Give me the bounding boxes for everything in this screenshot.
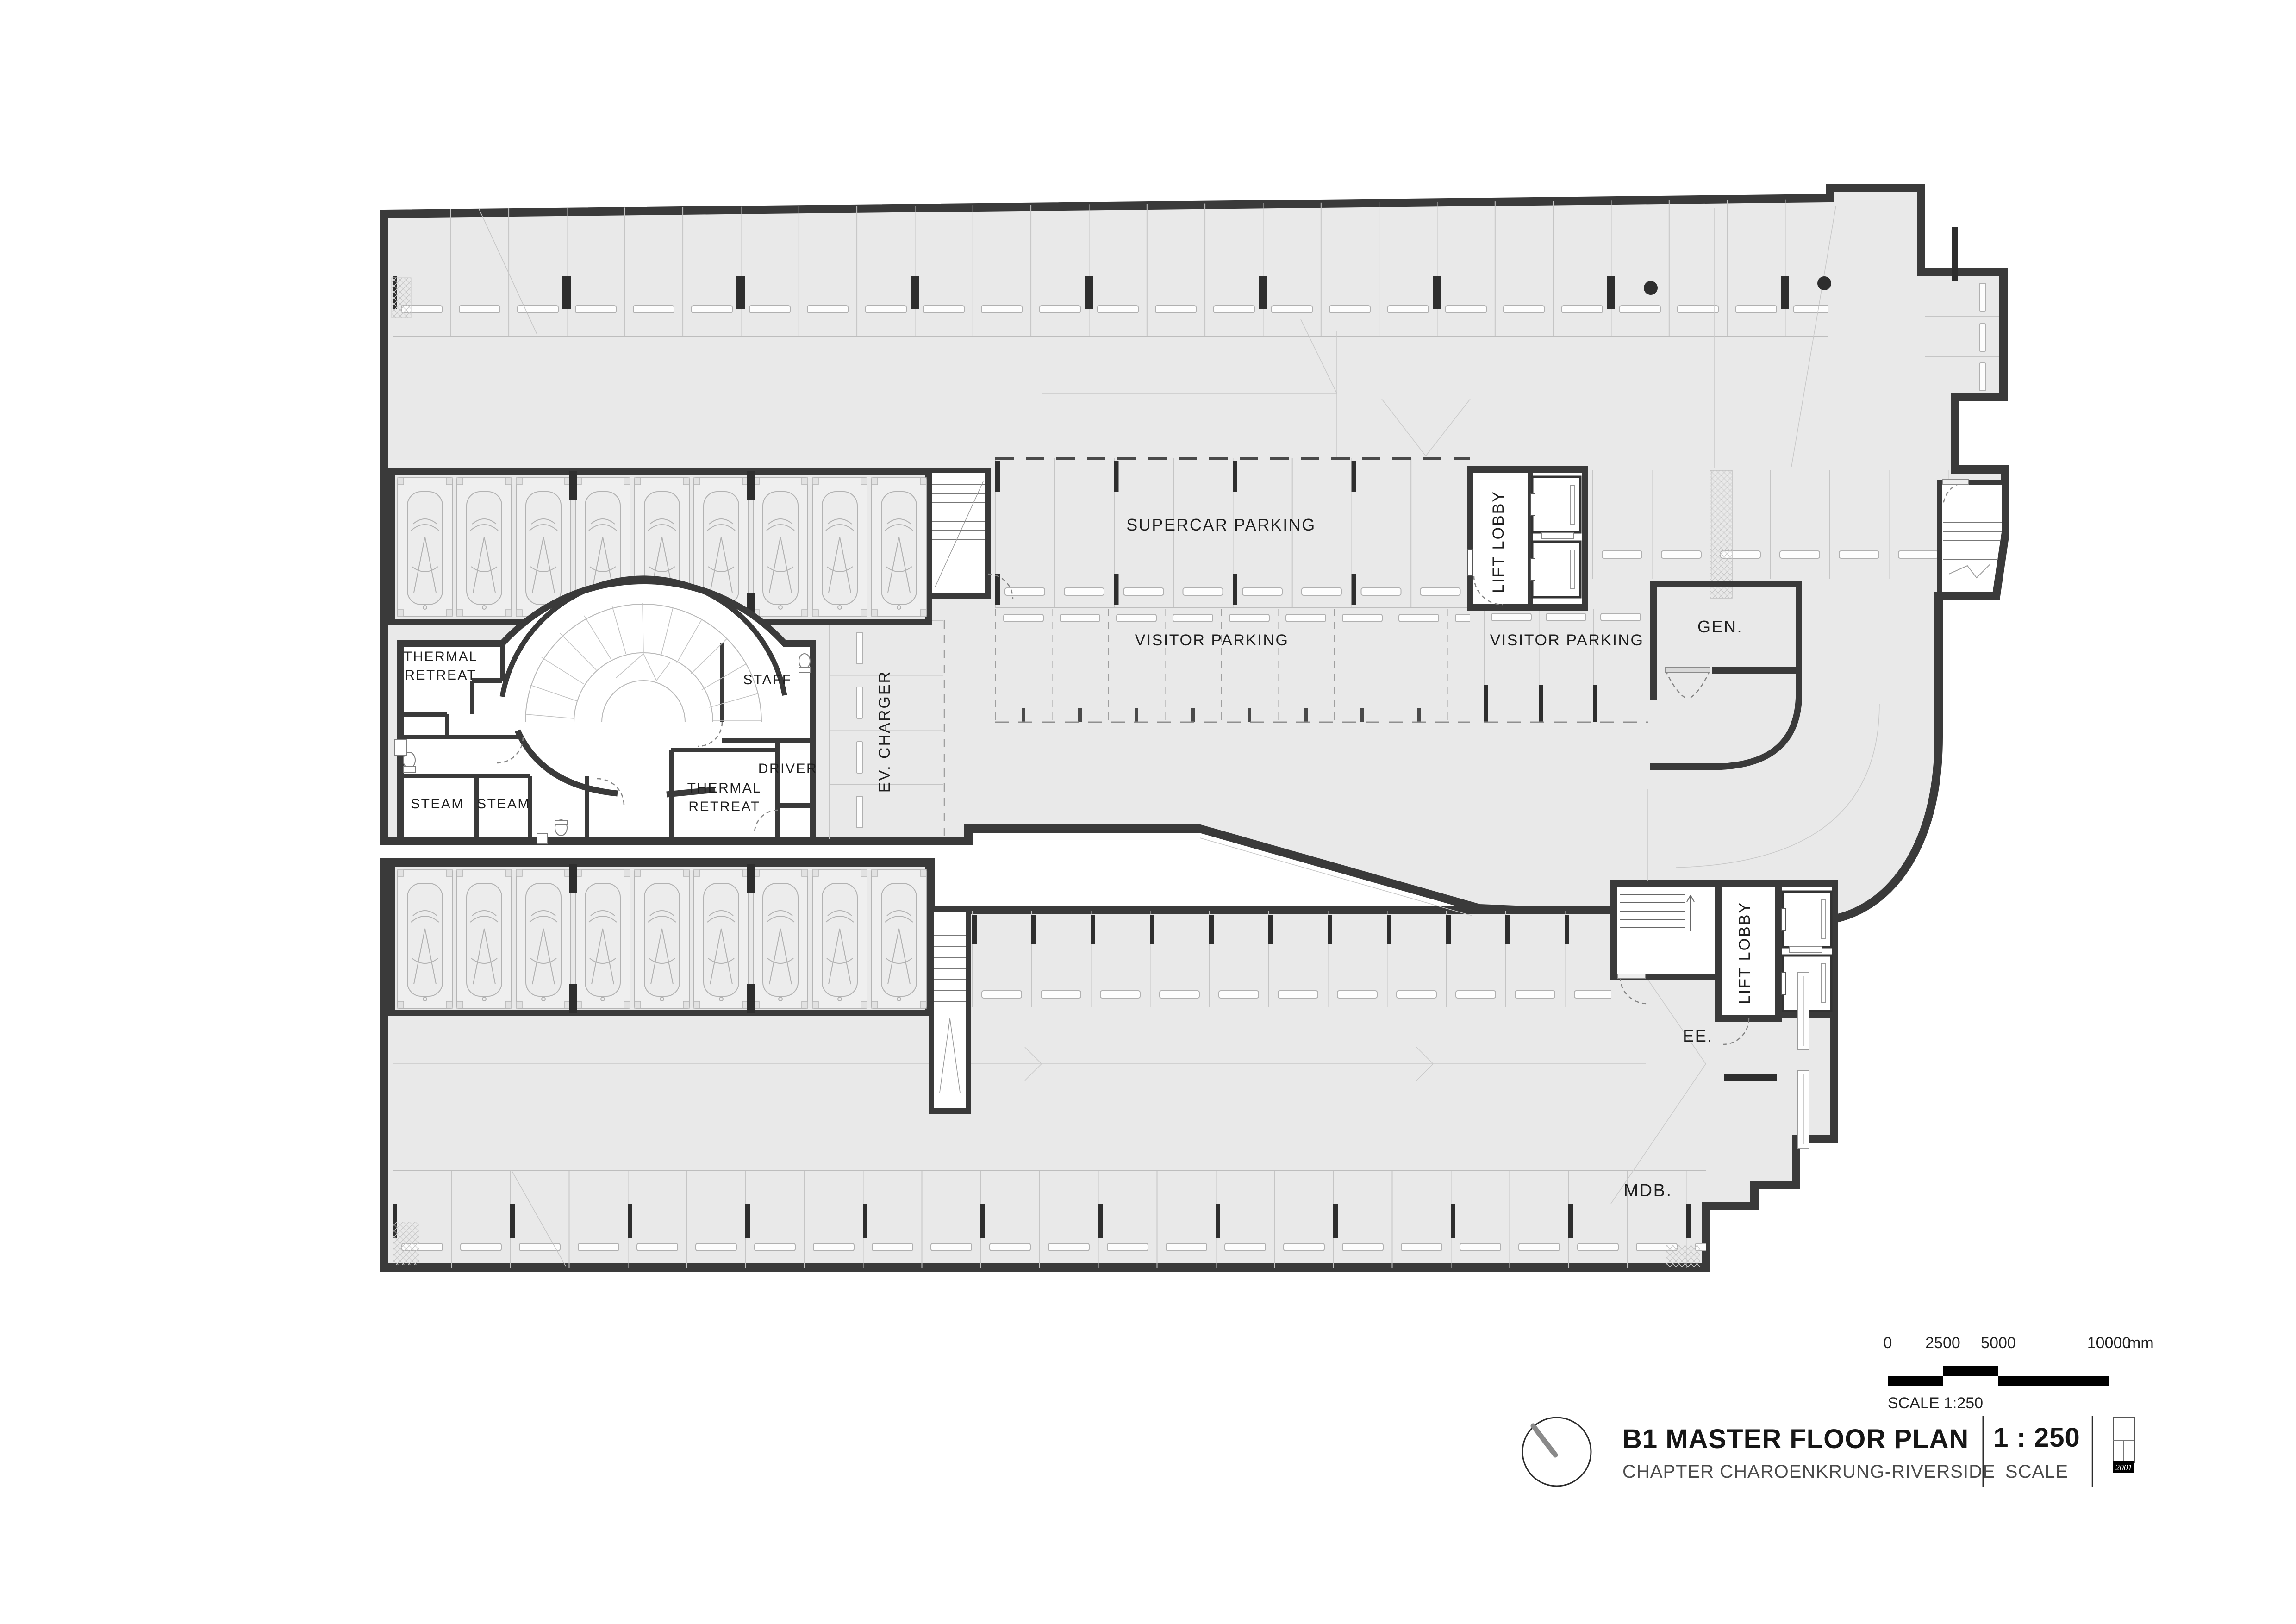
lower-top-parking-row [972, 911, 1611, 1007]
drawing-subtitle: CHAPTER CHAROENKRUNG-RIVERSIDE [1622, 1462, 1996, 1482]
lift-lobby-1 [1467, 469, 1585, 607]
title-block: B1 MASTER FLOOR PLAN CHAPTER CHAROENKRUN… [1522, 1416, 2134, 1487]
stair-room-right [1940, 480, 2004, 594]
drawing-title: B1 MASTER FLOOR PLAN [1622, 1424, 1969, 1454]
visitor-parking-row-1 [995, 609, 1470, 722]
key-plan-icon: 2001 [2113, 1418, 2134, 1473]
mdb-label: MDB. [1624, 1181, 1672, 1200]
scale-bar-segment [1888, 1376, 1943, 1386]
floor-plan-canvas: SUPERCAR PARKING VISITOR PARKING VISITOR… [0, 0, 2296, 1624]
thermal-retreat-label-line1: THERMAL [404, 649, 478, 664]
gen-label: GEN. [1697, 617, 1743, 636]
scale-tick: 0 [1884, 1334, 1892, 1352]
scale-tick: 5000 [1981, 1334, 2016, 1352]
scale-unit: mm [2128, 1334, 2154, 1352]
scale-word: SCALE [2005, 1462, 2068, 1482]
steam-label: STEAM [477, 796, 530, 812]
scale-value: 1 : 250 [1993, 1423, 2080, 1453]
key-plan-code: 2001 [2115, 1463, 2132, 1472]
car-icon [398, 869, 926, 1008]
parking-top-row [392, 199, 1828, 336]
scale-bar-segment [1943, 1366, 1998, 1376]
thermal-retreat-label-line2: RETREAT [405, 668, 476, 683]
north-arrow-icon [1522, 1418, 1591, 1486]
garage-row-lower [392, 864, 929, 1013]
stair-core-lower-left [931, 909, 968, 1111]
scale-tick: 2500 [1925, 1334, 1960, 1352]
scale-bar-segment [1998, 1376, 2109, 1386]
scale-tick: 10000 [2087, 1334, 2131, 1352]
supercar-parking-label: SUPERCAR PARKING [1126, 515, 1316, 534]
thermal-retreat-label-line2: RETREAT [688, 799, 760, 814]
visitor-parking-label: VISITOR PARKING [1135, 631, 1289, 649]
thermal-retreat-label-line1: THERMAL [687, 781, 762, 796]
scale-bar: 0 2500 5000 10000 mm SCALE 1:250 [1884, 1334, 2154, 1412]
driver-label: DRIVER [758, 761, 817, 776]
scale-caption: SCALE 1:250 [1888, 1394, 1983, 1412]
visitor-parking-label: VISITOR PARKING [1490, 631, 1644, 649]
bottom-parking-row [393, 1170, 1706, 1268]
lift-lobby-label: LIFT LOBBY [1490, 490, 1507, 593]
ee-label: EE. [1683, 1026, 1713, 1045]
steam-label: STEAM [411, 796, 464, 812]
staff-label: STAFF [743, 672, 792, 687]
lift-lobby-label: LIFT LOBBY [1736, 901, 1753, 1004]
ev-charger-label: EV. CHARGER [876, 670, 893, 793]
visitor-parking-row-2 [1484, 609, 1648, 722]
